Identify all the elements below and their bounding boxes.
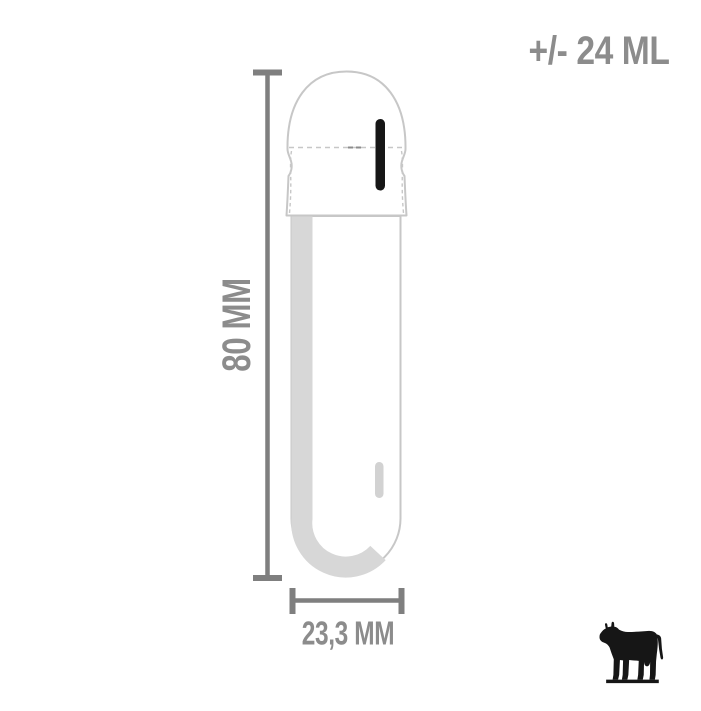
height-label: 80 MM [217,278,257,371]
cow-icon [600,622,664,683]
dimension-diagram-canvas: +/- 24 ML 80 MM 23,3 MM [0,0,701,711]
tube-highlight-mark [375,462,384,498]
cap-slot-mark [376,119,386,191]
width-dimension-line [293,588,402,614]
tube-illustration [287,72,407,574]
cow-ground-bar [606,680,659,684]
volume-label: +/- 24 ML [529,31,670,71]
width-label: 23,3 MM [302,617,394,650]
tube-dimension-diagram [0,0,701,711]
tube-cap [287,72,407,216]
cow-body [600,622,658,680]
